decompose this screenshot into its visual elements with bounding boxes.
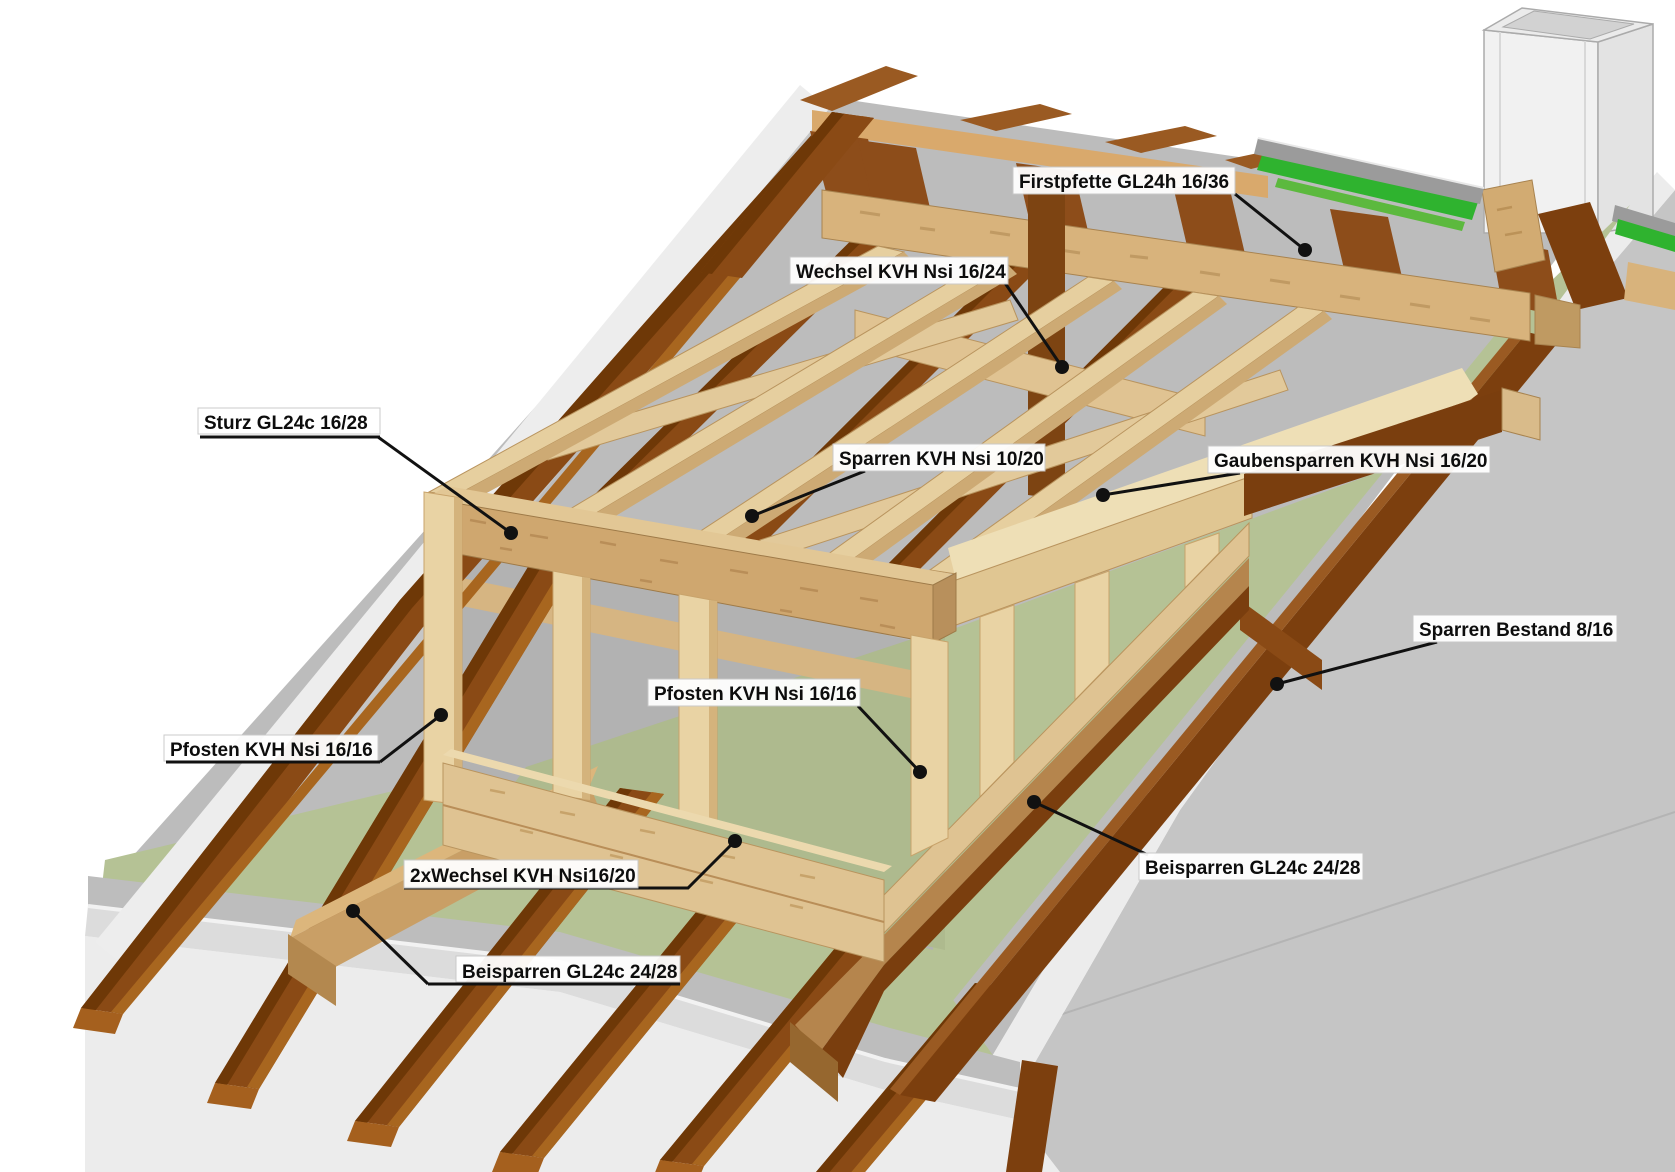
svg-text:Firstpfette GL24h 16/36: Firstpfette GL24h 16/36 bbox=[1019, 172, 1229, 193]
svg-text:Beisparren GL24c 24/28: Beisparren GL24c 24/28 bbox=[462, 962, 677, 983]
svg-text:Beisparren GL24c 24/28: Beisparren GL24c 24/28 bbox=[1145, 858, 1360, 879]
svg-text:Sparren KVH Nsi 10/20: Sparren KVH Nsi 10/20 bbox=[839, 449, 1044, 470]
svg-text:Sturz GL24c 16/28: Sturz GL24c 16/28 bbox=[204, 413, 368, 434]
svg-text:Pfosten KVH Nsi 16/16: Pfosten KVH Nsi 16/16 bbox=[654, 684, 857, 705]
svg-text:Wechsel KVH Nsi 16/24: Wechsel KVH Nsi 16/24 bbox=[796, 262, 1006, 283]
svg-text:Gaubensparren KVH Nsi 16/20: Gaubensparren KVH Nsi 16/20 bbox=[1214, 451, 1488, 472]
svg-text:Sparren Bestand 8/16: Sparren Bestand 8/16 bbox=[1419, 620, 1613, 641]
svg-text:Pfosten KVH Nsi 16/16: Pfosten KVH Nsi 16/16 bbox=[170, 740, 373, 761]
svg-text:2xWechsel KVH Nsi16/20: 2xWechsel KVH Nsi16/20 bbox=[410, 866, 636, 887]
